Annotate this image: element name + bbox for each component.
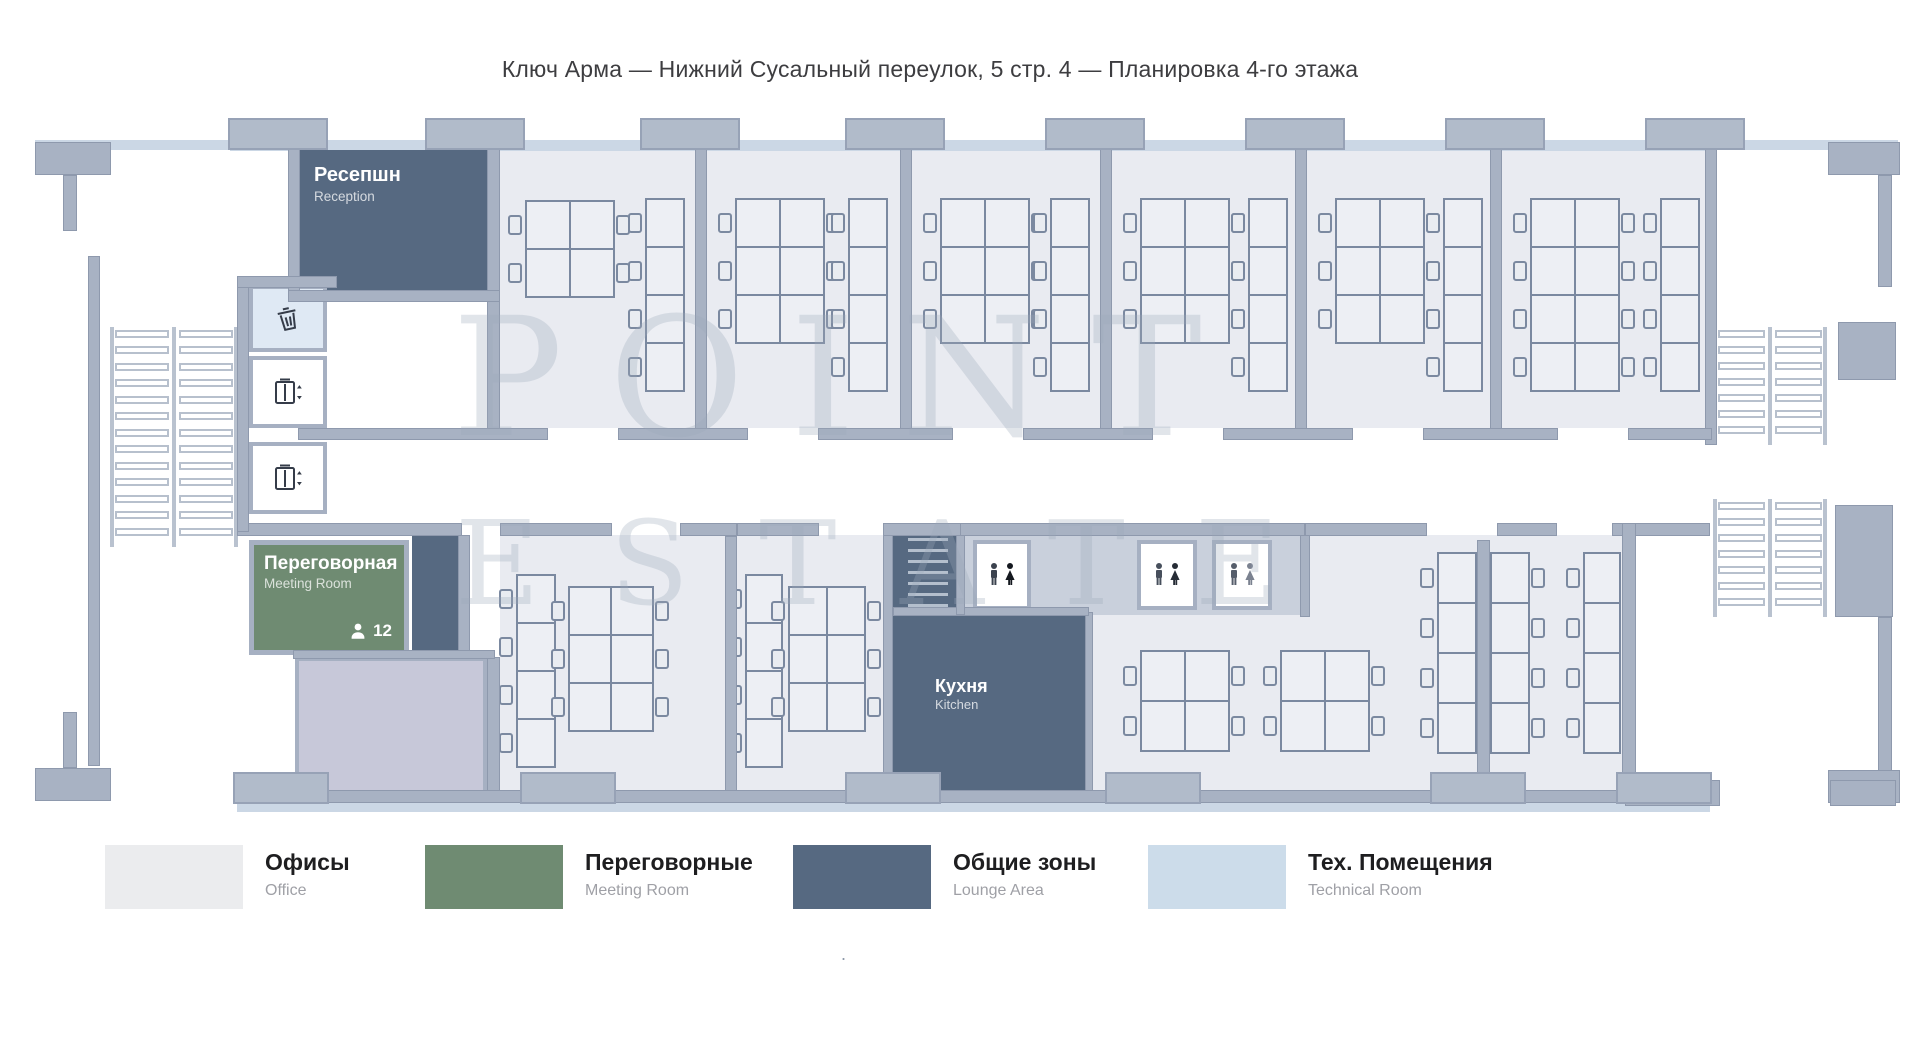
desk (1184, 294, 1230, 344)
desk (645, 198, 685, 248)
chair (1513, 357, 1527, 377)
chair (499, 685, 513, 705)
wall (737, 523, 819, 536)
stair-step (1775, 378, 1822, 386)
stair-step (179, 396, 233, 404)
desk (568, 586, 612, 636)
elevator-icon (272, 377, 304, 407)
chair (1123, 261, 1137, 281)
desk (1490, 702, 1530, 754)
desk (1335, 294, 1381, 344)
desk (1443, 294, 1483, 344)
kitchen-name-en: Kitchen (935, 698, 988, 713)
chair (1420, 668, 1434, 688)
chair (551, 649, 565, 669)
legend-item-office: Офисы Office (105, 845, 350, 909)
desk (1437, 702, 1477, 754)
stair-step (179, 330, 233, 338)
desk (1660, 246, 1700, 296)
wall (1878, 617, 1892, 772)
legend-label-ru: Общие зоны (953, 849, 1096, 876)
chair (1123, 716, 1137, 736)
desk (1530, 246, 1576, 296)
stair-step (115, 379, 169, 387)
room-kitchen: Кухня Kitchen (893, 614, 1085, 793)
desk (645, 294, 685, 344)
wall (960, 523, 1305, 536)
desk (848, 198, 888, 248)
elevator-room (249, 356, 327, 428)
staircase (110, 327, 114, 547)
wall (88, 256, 100, 766)
wall (1497, 523, 1557, 536)
chair (1621, 261, 1635, 281)
chair (1426, 357, 1440, 377)
stair-step (115, 412, 169, 420)
stair-step (1718, 518, 1765, 526)
desk (735, 246, 781, 296)
wc-icon (1224, 562, 1260, 589)
wall (1305, 523, 1427, 536)
wall (1628, 428, 1712, 440)
desk (1184, 700, 1230, 752)
facade-pilaster (1616, 772, 1712, 804)
chair (1123, 309, 1137, 329)
stair-step (1775, 362, 1822, 370)
desk (516, 670, 556, 720)
chair (1643, 357, 1657, 377)
stair-step (115, 429, 169, 437)
desk (984, 198, 1030, 248)
desk (516, 574, 556, 624)
chair (1231, 666, 1245, 686)
desk (1583, 552, 1621, 604)
lounge-strip (412, 535, 458, 657)
facade-pilaster (1645, 118, 1745, 150)
desk (645, 342, 685, 392)
wc-room (973, 540, 1031, 610)
chair (1426, 213, 1440, 233)
stair-step (1718, 394, 1765, 402)
wall (956, 535, 965, 615)
page: Ключ Арма — Нижний Сусальный переулок, 5… (0, 0, 1920, 1039)
chair (1531, 618, 1545, 638)
chair (1231, 716, 1245, 736)
desk (610, 634, 654, 684)
wall (1490, 148, 1502, 438)
chair (771, 649, 785, 669)
wall (293, 650, 495, 659)
chair (1033, 309, 1047, 329)
desk (1443, 342, 1483, 392)
stair-step (1775, 410, 1822, 418)
legend-swatch (1148, 845, 1286, 909)
desk (1248, 198, 1288, 248)
wall (900, 148, 912, 438)
chair (508, 215, 522, 235)
desk (848, 294, 888, 344)
desk (826, 586, 866, 636)
wall (1838, 322, 1896, 380)
chair (1643, 309, 1657, 329)
desk (568, 682, 612, 732)
desk (1280, 650, 1326, 702)
stair-step (179, 363, 233, 371)
dot-mark: . (841, 944, 846, 965)
staircase (1713, 499, 1717, 617)
wall (288, 290, 500, 302)
stair-step (1775, 518, 1822, 526)
stair-step (115, 346, 169, 354)
wall (1295, 148, 1307, 438)
meeting-name-ru: Переговорная (264, 553, 397, 575)
chair (1318, 309, 1332, 329)
stair-step (1718, 378, 1765, 386)
legend-label-en: Office (265, 882, 350, 900)
legend-item-meeting: Переговорные Meeting Room (425, 845, 753, 909)
desk (940, 246, 986, 296)
chair (1566, 618, 1580, 638)
chair (831, 261, 845, 281)
stair-step (1718, 346, 1765, 354)
stair-step (179, 412, 233, 420)
desk (1574, 246, 1620, 296)
stair-step (1775, 550, 1822, 558)
desk (1280, 700, 1326, 752)
chair (628, 309, 642, 329)
wc-room (1137, 540, 1197, 610)
chair (499, 637, 513, 657)
desk (1437, 602, 1477, 654)
chair (718, 261, 732, 281)
wall (1100, 148, 1112, 438)
desk (1324, 650, 1370, 702)
chair (655, 697, 669, 717)
desk (735, 294, 781, 344)
desk (940, 294, 986, 344)
stair-step (1718, 550, 1765, 558)
stair-step (1718, 426, 1765, 434)
legend-label-en: Lounge Area (953, 882, 1096, 900)
stair-step (1775, 582, 1822, 590)
desk (525, 200, 571, 250)
chair (1426, 261, 1440, 281)
chair (718, 213, 732, 233)
desk (779, 198, 825, 248)
chair (1231, 357, 1245, 377)
stair-step (179, 462, 233, 470)
desk (1490, 552, 1530, 604)
wc-icon (984, 562, 1020, 589)
desk (1050, 246, 1090, 296)
desk (516, 718, 556, 768)
chair (831, 357, 845, 377)
desk (1140, 700, 1186, 752)
chair (1531, 568, 1545, 588)
meeting-capacity: 12 (373, 621, 392, 641)
stair-step (1718, 502, 1765, 510)
stair-step (179, 495, 233, 503)
chair (1531, 718, 1545, 738)
desk (1443, 198, 1483, 248)
desk (1324, 700, 1370, 752)
chair (771, 697, 785, 717)
stair-step (1775, 534, 1822, 542)
chair (551, 697, 565, 717)
reception-name-ru: Ресепшн (314, 164, 401, 187)
stair-step (179, 528, 233, 536)
wall (883, 535, 893, 793)
desk (1140, 246, 1186, 296)
chair (628, 357, 642, 377)
legend-swatch (105, 845, 243, 909)
facade-pilaster (1245, 118, 1345, 150)
chair (1566, 668, 1580, 688)
chair (1033, 261, 1047, 281)
stair-step (1775, 598, 1822, 606)
desk (1184, 650, 1230, 702)
kitchen-counter (908, 538, 948, 608)
chair (655, 601, 669, 621)
chair (1033, 357, 1047, 377)
wall (725, 536, 737, 793)
chair (867, 697, 881, 717)
wall (237, 276, 337, 288)
desk (1140, 650, 1186, 702)
stair-step (1775, 426, 1822, 434)
person-icon (349, 622, 367, 640)
stair-step (115, 445, 169, 453)
desk (848, 342, 888, 392)
facade-pilaster (1045, 118, 1145, 150)
stair-step (115, 330, 169, 338)
stair-step (179, 445, 233, 453)
wall (63, 175, 77, 231)
chair (1318, 213, 1332, 233)
chair (551, 601, 565, 621)
desk (1530, 294, 1576, 344)
desk (1660, 198, 1700, 248)
desk (1248, 294, 1288, 344)
desk (525, 248, 571, 298)
wall (237, 276, 249, 532)
chair (923, 261, 937, 281)
desk (1335, 198, 1381, 248)
desk (826, 682, 866, 732)
staircase (1768, 327, 1772, 445)
chair (1231, 261, 1245, 281)
stair-step (115, 478, 169, 486)
desk (1530, 198, 1576, 248)
legend-swatch (425, 845, 563, 909)
desk (1050, 198, 1090, 248)
chair (1643, 261, 1657, 281)
desk (1660, 294, 1700, 344)
desk (735, 198, 781, 248)
wall (1223, 428, 1353, 440)
chair (1263, 716, 1277, 736)
desk (788, 586, 828, 636)
stair-step (179, 511, 233, 519)
chair (1566, 568, 1580, 588)
chair (1371, 716, 1385, 736)
stair-step (1775, 346, 1822, 354)
desk (1437, 552, 1477, 604)
desk (1443, 246, 1483, 296)
stair-step (115, 528, 169, 536)
desk (1335, 246, 1381, 296)
desk (1140, 294, 1186, 344)
desk (788, 634, 828, 684)
stair-step (1775, 394, 1822, 402)
desk (1379, 246, 1425, 296)
chair (1513, 261, 1527, 281)
desk (1583, 702, 1621, 754)
desk (1379, 294, 1425, 344)
desk (1583, 602, 1621, 654)
stair-step (1718, 582, 1765, 590)
chair (1231, 213, 1245, 233)
chair (1231, 309, 1245, 329)
desk (1140, 198, 1186, 248)
staircase (1768, 499, 1772, 617)
chair (1566, 718, 1580, 738)
desk (1437, 652, 1477, 704)
desk (610, 586, 654, 636)
stair-step (1718, 330, 1765, 338)
chair (1371, 666, 1385, 686)
desk (940, 198, 986, 248)
desk (826, 634, 866, 684)
stair-step (1718, 566, 1765, 574)
desk (1184, 246, 1230, 296)
facade-pilaster (520, 772, 616, 804)
wall (487, 657, 500, 793)
wall (298, 428, 548, 440)
chair (1318, 261, 1332, 281)
staircase (172, 327, 176, 547)
chair (1513, 309, 1527, 329)
elevator-icon (272, 463, 304, 493)
stair-step (1775, 330, 1822, 338)
wc-room (1212, 540, 1272, 610)
wall (1705, 140, 1717, 445)
trash-icon (271, 301, 305, 336)
desk (569, 200, 615, 250)
stair-step (115, 495, 169, 503)
chair (718, 309, 732, 329)
chair (923, 309, 937, 329)
desk (1050, 342, 1090, 392)
reception-name-en: Reception (314, 189, 401, 205)
staircase (1823, 499, 1827, 617)
chair (867, 601, 881, 621)
desk (568, 634, 612, 684)
chair (655, 649, 669, 669)
legend-item-lounge: Общие зоны Lounge Area (793, 845, 1096, 909)
desk (1574, 342, 1620, 392)
elevator-room (249, 442, 327, 514)
wall (1828, 142, 1900, 175)
chair (499, 589, 513, 609)
wall (1830, 780, 1896, 806)
legend-item-technical: Тех. Помещения Technical Room (1148, 845, 1493, 909)
desk (745, 718, 783, 768)
desk (1660, 342, 1700, 392)
wall (1023, 428, 1153, 440)
legend-label-en: Meeting Room (585, 882, 753, 900)
legend-swatch (793, 845, 931, 909)
wall (35, 768, 111, 801)
wall (1878, 175, 1892, 287)
desk (848, 246, 888, 296)
chair (771, 601, 785, 621)
wc-icon (1149, 562, 1185, 589)
desk (1379, 198, 1425, 248)
stair-step (1775, 566, 1822, 574)
wall (1300, 535, 1310, 617)
chair (1621, 213, 1635, 233)
wall (818, 428, 953, 440)
facade-pilaster (640, 118, 740, 150)
desk (516, 622, 556, 672)
chair (1420, 568, 1434, 588)
chair (923, 213, 937, 233)
stair-step (1718, 534, 1765, 542)
chair (1621, 309, 1635, 329)
wall (695, 148, 707, 438)
chair (1420, 618, 1434, 638)
desk (779, 294, 825, 344)
chair (1643, 213, 1657, 233)
wall (1423, 428, 1558, 440)
desk (788, 682, 828, 732)
stair-step (1775, 502, 1822, 510)
room-meeting: Переговорная Meeting Room 12 (249, 540, 409, 655)
stair-step (115, 396, 169, 404)
wall (1085, 612, 1093, 793)
wall (1622, 523, 1636, 793)
chair (831, 213, 845, 233)
chair (1033, 213, 1047, 233)
desk (1574, 198, 1620, 248)
kitchen-name-ru: Кухня (935, 676, 988, 697)
wall (680, 523, 737, 536)
desk (1248, 246, 1288, 296)
desk (610, 682, 654, 732)
wall (35, 142, 111, 175)
legend-label-en: Technical Room (1308, 882, 1493, 900)
chair (628, 213, 642, 233)
desk (1490, 602, 1530, 654)
desk (984, 294, 1030, 344)
facade-pilaster (1430, 772, 1526, 804)
facade-pilaster (233, 772, 329, 804)
legend-label-ru: Офисы (265, 849, 350, 876)
desk (984, 246, 1030, 296)
wall (63, 712, 77, 768)
chair (1513, 213, 1527, 233)
wall (500, 523, 612, 536)
desk (1050, 294, 1090, 344)
staircase (1823, 327, 1827, 445)
desk (569, 248, 615, 298)
chair (1263, 666, 1277, 686)
chair (1420, 718, 1434, 738)
desk (645, 246, 685, 296)
stair-step (179, 379, 233, 387)
chair (628, 261, 642, 281)
